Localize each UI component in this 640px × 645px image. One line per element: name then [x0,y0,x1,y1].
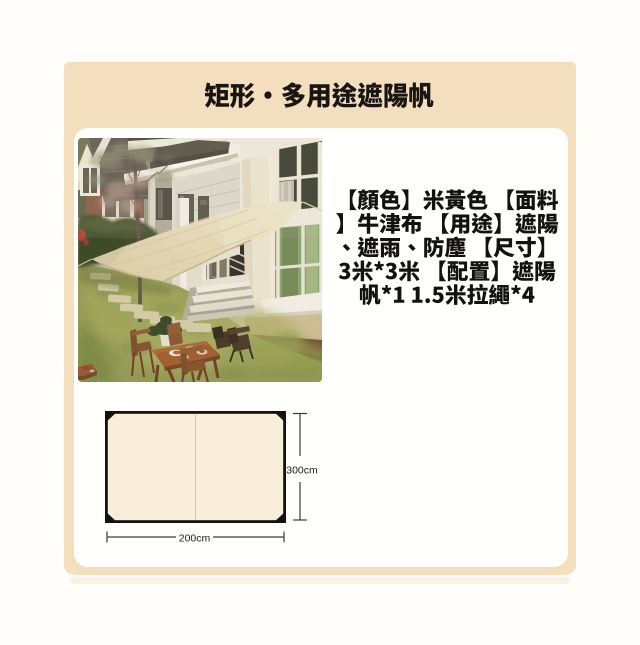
svg-text:200cm: 200cm [179,533,211,545]
svg-text:300cm: 300cm [286,465,318,477]
